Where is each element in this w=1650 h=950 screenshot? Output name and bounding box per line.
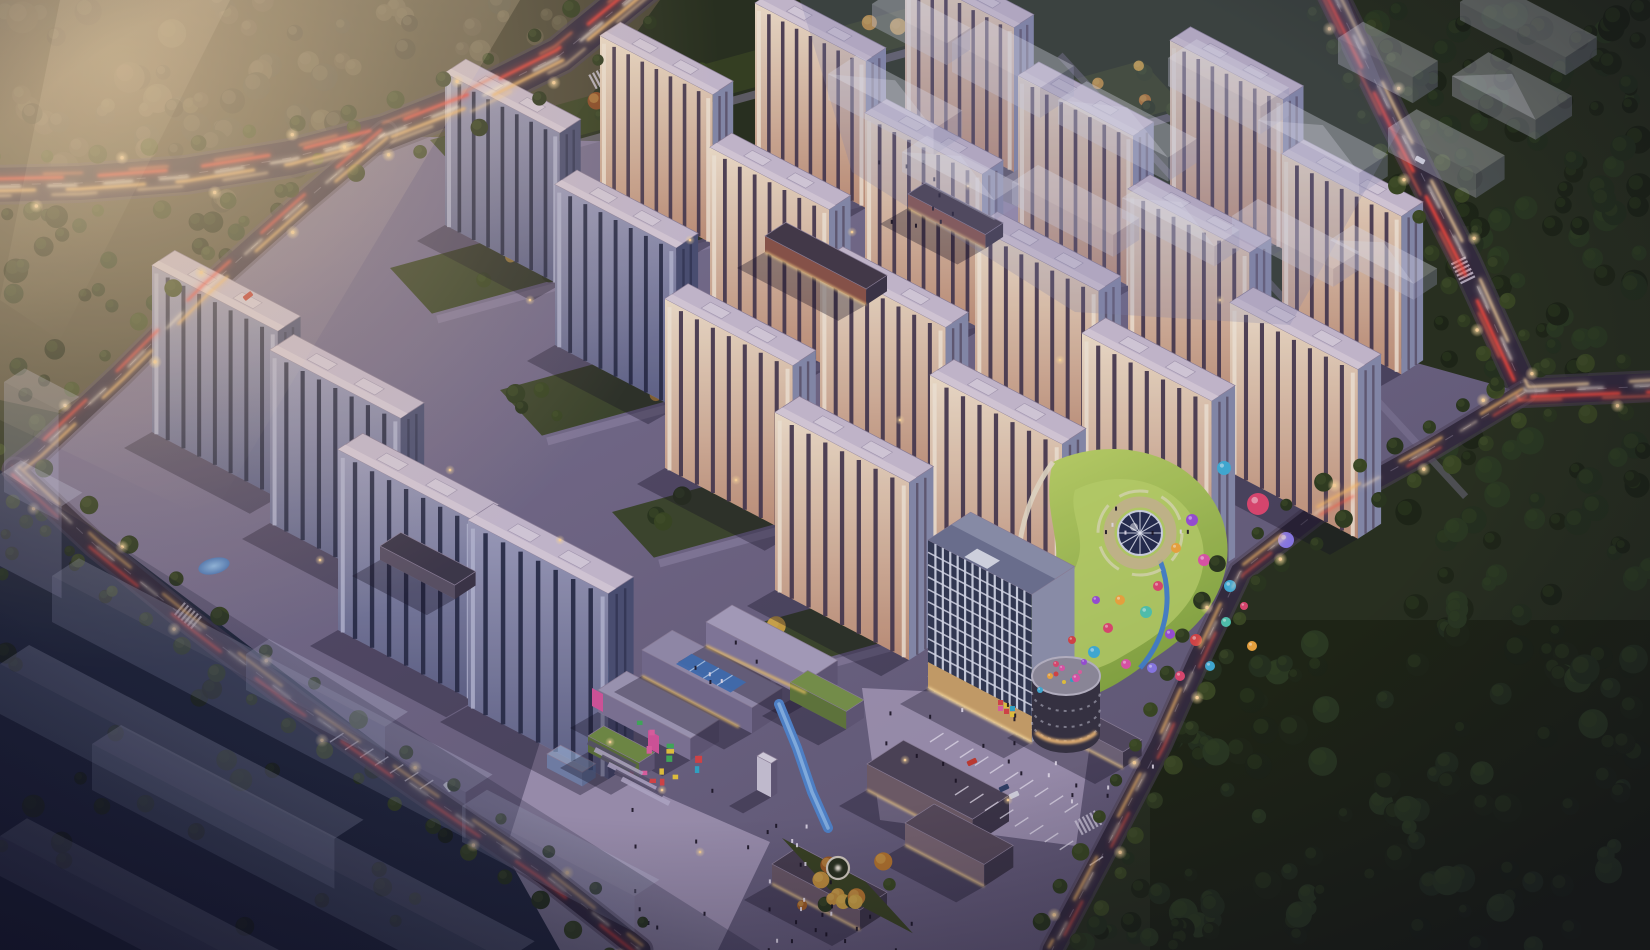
masterplan-scene-canvas	[0, 0, 1650, 950]
layer-atm	[0, 0, 1650, 950]
aerial-masterplan-render	[0, 0, 1650, 950]
